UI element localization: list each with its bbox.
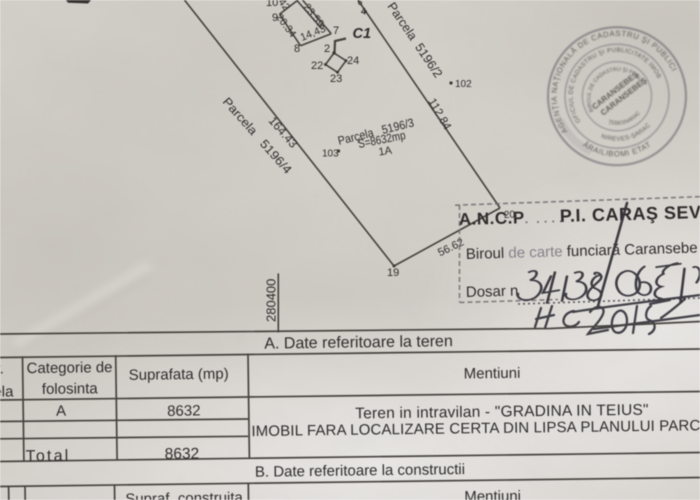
svg-text:Supraf. construita: Supraf. construita (125, 489, 243, 500)
svg-text:cela: cela (0, 383, 14, 400)
svg-text:20: 20 (504, 210, 516, 221)
svg-text:102: 102 (455, 79, 472, 90)
svg-text:Mentiuni: Mentiuni (464, 365, 521, 383)
svg-text:folosinta: folosinta (42, 380, 99, 398)
svg-text:22: 22 (311, 60, 323, 72)
svg-text:A: A (56, 403, 66, 420)
svg-text:4: 4 (361, 7, 366, 17)
svg-text:2: 2 (324, 43, 330, 55)
svg-text:Total: Total (26, 448, 71, 466)
svg-text:8632: 8632 (165, 445, 200, 462)
svg-text:24: 24 (347, 55, 359, 67)
svg-text:8: 8 (294, 43, 300, 55)
svg-text:23: 23 (330, 73, 342, 85)
svg-text:7: 7 (333, 25, 339, 37)
svg-text:A. Date referitoare la teren: A. Date referitoare la teren (264, 333, 453, 352)
svg-text:Categorie de: Categorie de (26, 359, 112, 377)
svg-text:280400: 280400 (264, 279, 279, 322)
svg-text:103: 103 (322, 149, 339, 160)
svg-text:C1: C1 (353, 26, 372, 42)
svg-text:8632: 8632 (167, 402, 201, 419)
svg-text:P.I. CARAŞ SEVER: P.I. CARAŞ SEVER (560, 201, 700, 226)
svg-text:1A: 1A (378, 145, 394, 159)
svg-text:B. Date referitoare la constru: B. Date referitoare la constructii (255, 461, 465, 481)
svg-text:19: 19 (387, 267, 399, 279)
svg-text:r.: r. (0, 360, 4, 377)
svg-text:Dosar n: Dosar n (466, 283, 519, 301)
svg-text:Mentiuni: Mentiuni (464, 488, 521, 500)
svg-text:Suprafata (mp): Suprafata (mp) (129, 366, 229, 384)
